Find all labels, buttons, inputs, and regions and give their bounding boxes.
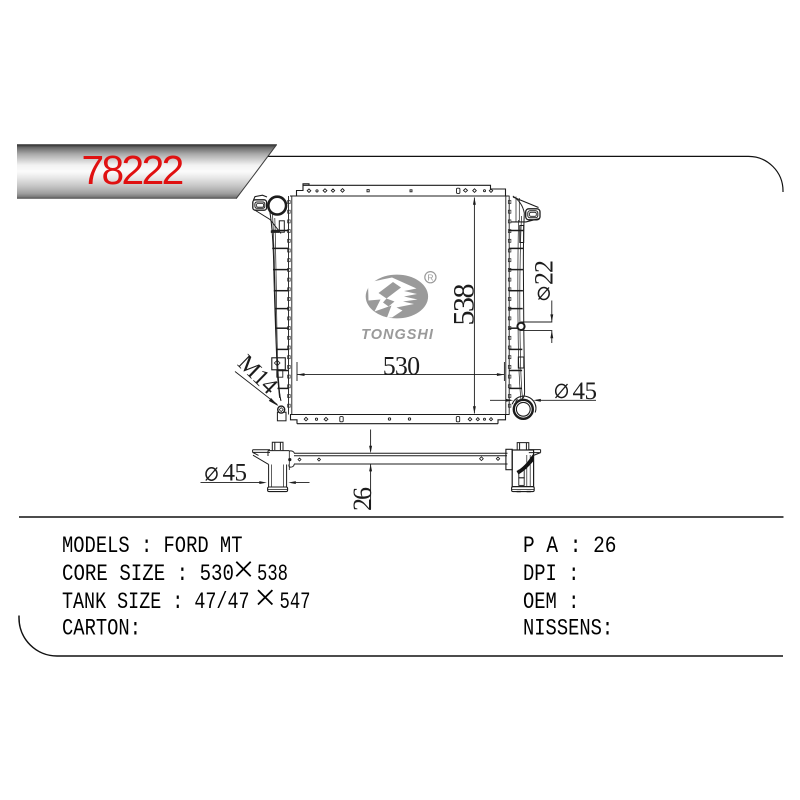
svg-text:78222: 78222 [82,147,183,193]
svg-text:45: 45 [223,460,247,487]
svg-text:CORE SIZE : 530: CORE SIZE : 530 [62,561,234,587]
svg-text:R: R [427,272,433,282]
svg-text:OEM :: OEM : [523,589,579,615]
svg-text:530: 530 [383,352,420,381]
svg-text:TONGSHI: TONGSHI [361,327,434,343]
svg-text:CARTON:: CARTON: [62,616,141,642]
svg-text:26: 26 [348,487,377,511]
svg-text:538: 538 [448,285,481,326]
svg-text:547: 547 [280,589,311,615]
svg-text:45: 45 [573,378,597,405]
svg-text:TANK SIZE : 47/47: TANK SIZE : 47/47 [62,589,250,615]
svg-text:NISSENS:: NISSENS: [523,616,613,642]
svg-text:MODELS : FORD MT: MODELS : FORD MT [62,533,243,559]
svg-text:538: 538 [257,561,288,587]
svg-text:22: 22 [529,261,558,285]
svg-text:DPI :: DPI : [523,561,579,587]
svg-text:P A : 26: P A : 26 [523,533,617,559]
